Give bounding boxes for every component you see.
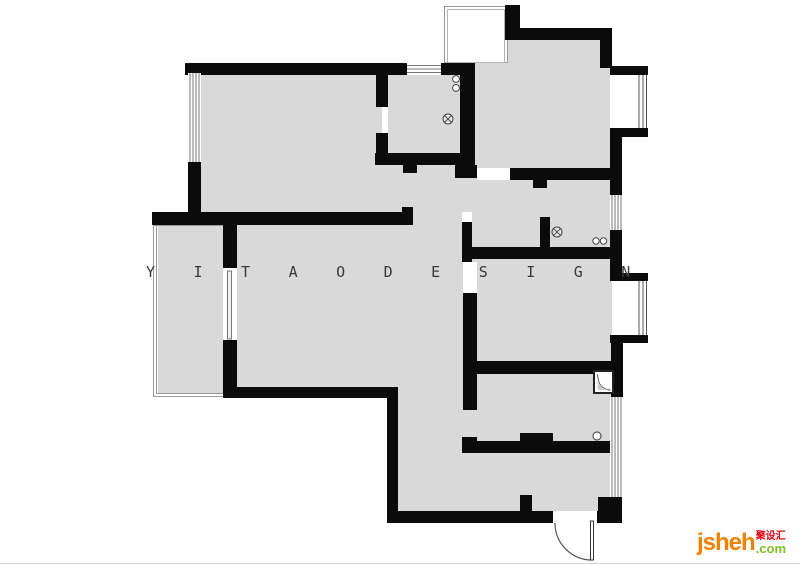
window-right-lower [610,397,622,497]
bottom-divider-line [0,563,800,564]
bay-window-middle [612,281,648,335]
screenshot-root: YITAODESIGN jsheh 聚设汇 .com [0,0,800,565]
top-balcony-outline [445,7,508,63]
logo-tld-text: .com [756,543,786,555]
shower-box-icon [594,371,613,393]
bay-window-top [612,75,648,128]
watermark-text: YITAODESIGN [146,263,669,281]
floor-drain-icon [552,227,562,237]
floor-plan-drawing [0,0,800,565]
site-logo: jsheh 聚设汇 .com [697,530,786,556]
entry-door-swing-icon [555,521,594,560]
peephole-circle-icon [593,432,601,440]
logo-brand-text: jsheh [697,530,755,556]
window-right-upper [610,195,622,230]
logo-stack: 聚设汇 .com [756,532,786,555]
floor-drain-icon [443,114,453,124]
window-left [188,73,201,162]
window-top [407,63,441,75]
balcony-door-leaf [228,271,232,339]
